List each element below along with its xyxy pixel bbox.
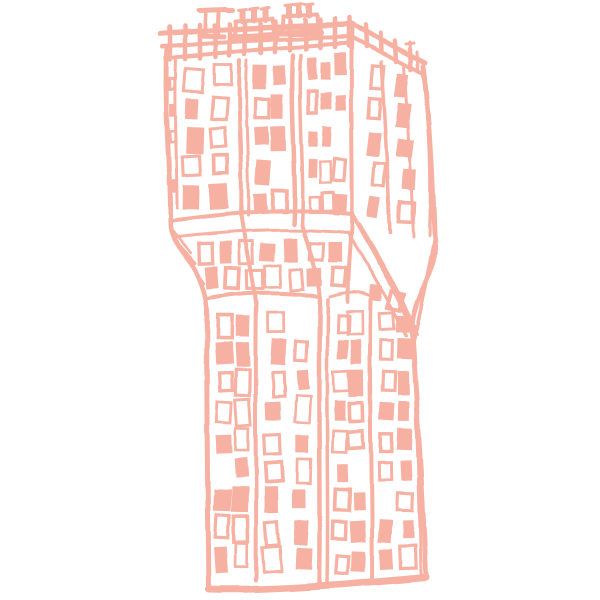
window: [235, 316, 249, 338]
window: [217, 316, 232, 339]
window: [308, 91, 316, 113]
window: [255, 159, 271, 185]
ledge-left: [206, 293, 318, 299]
window: [308, 131, 318, 147]
window: [335, 400, 346, 420]
window: [265, 462, 283, 482]
window: [400, 546, 416, 569]
window: [381, 434, 392, 451]
window: [234, 458, 248, 479]
window: [332, 430, 347, 452]
window: [271, 94, 283, 119]
window: [295, 396, 311, 422]
side-face-line-1: [381, 62, 390, 233]
left-edge-lower: [207, 310, 209, 589]
window: [205, 266, 219, 289]
window: [235, 342, 250, 367]
window: [293, 520, 308, 545]
window: [216, 435, 233, 454]
window: [353, 492, 365, 510]
window: [335, 489, 350, 511]
window: [219, 373, 232, 391]
window: [215, 342, 234, 365]
chimney-b-caps: [239, 8, 269, 10]
window: [350, 403, 363, 421]
window: [235, 369, 249, 395]
right-fold-curve: [414, 240, 434, 340]
window: [265, 522, 279, 546]
left-diagonal-1: [175, 240, 195, 263]
window: [211, 98, 227, 120]
window: [254, 127, 269, 146]
window: [296, 370, 309, 390]
window: [337, 465, 348, 483]
window: [210, 127, 226, 147]
window: [398, 371, 410, 395]
window: [368, 98, 380, 118]
chimney-a-base: [200, 36, 224, 37]
window: [214, 546, 228, 573]
window: [380, 312, 395, 329]
window: [272, 65, 286, 85]
window: [333, 372, 350, 392]
divider-2b: [300, 55, 303, 225]
lower-divider-1: [255, 302, 256, 580]
window: [400, 460, 412, 481]
window: [332, 268, 346, 287]
window: [307, 57, 318, 79]
crease-upper-1: [172, 211, 351, 221]
window: [350, 520, 367, 542]
window: [322, 126, 332, 146]
window: [270, 339, 287, 366]
window: [373, 163, 386, 187]
window: [264, 487, 278, 513]
divider-1b: [246, 60, 248, 216]
window: [186, 127, 204, 155]
window: [337, 340, 349, 360]
window: [233, 516, 248, 542]
window: [333, 159, 346, 181]
lower-divider-2a: [319, 300, 320, 583]
window: [183, 185, 200, 210]
window: [273, 190, 287, 212]
window: [219, 241, 232, 263]
window: [213, 490, 231, 512]
window: [378, 519, 392, 542]
building-illustration: [0, 0, 600, 600]
lower-divider-2b: [327, 300, 328, 583]
corner-line: [351, 30, 352, 228]
window: [336, 555, 349, 573]
window: [182, 156, 200, 176]
window: [332, 522, 346, 539]
window: [236, 543, 248, 566]
window: [216, 402, 231, 423]
divider-1a: [239, 60, 241, 216]
window: [398, 401, 409, 421]
window: [270, 127, 286, 151]
divider-2a: [292, 55, 295, 224]
window: [262, 546, 281, 571]
right-diagonal-3: [349, 235, 406, 336]
left-edge-upper: [166, 47, 170, 206]
window: [209, 183, 229, 210]
window: [322, 192, 334, 211]
window: [215, 65, 232, 86]
window: [367, 197, 381, 219]
window: [397, 428, 413, 450]
window: [308, 159, 317, 177]
window: [336, 95, 347, 110]
window: [403, 520, 415, 539]
window: [396, 139, 414, 159]
window: [265, 402, 281, 420]
window: [334, 53, 346, 75]
window: [379, 549, 393, 570]
window: [231, 487, 249, 512]
window: [236, 428, 249, 450]
window: [283, 238, 298, 262]
window: [297, 459, 311, 484]
window: [215, 515, 229, 538]
window: [381, 340, 392, 360]
canvas: [0, 0, 600, 600]
lower-divider-3: [370, 300, 372, 581]
window: [185, 99, 198, 119]
window: [383, 372, 396, 391]
window: [397, 493, 413, 510]
window: [320, 161, 331, 182]
window: [379, 462, 391, 480]
window: [328, 242, 342, 262]
window: [184, 68, 204, 92]
window: [264, 434, 281, 455]
left-trim-line: [175, 58, 177, 208]
window: [320, 93, 332, 110]
chimney-c-caps: [285, 4, 313, 6]
window: [351, 340, 363, 365]
window: [255, 99, 269, 118]
window: [235, 399, 251, 426]
window: [379, 402, 395, 420]
window: [265, 265, 281, 287]
window: [295, 341, 307, 361]
window: [366, 131, 382, 156]
window: [292, 490, 306, 508]
window: [199, 243, 213, 263]
window: [253, 65, 267, 90]
window: [213, 155, 227, 173]
window: [295, 548, 312, 569]
window: [321, 62, 331, 79]
window: [225, 268, 239, 289]
window: [267, 312, 283, 332]
window: [348, 431, 364, 449]
window: [296, 434, 308, 452]
window: [272, 373, 284, 397]
window: [349, 371, 365, 397]
window: [290, 269, 304, 290]
ledge-right: [330, 293, 372, 298]
chimney-a-cap: [199, 9, 233, 10]
crease-upper-2: [177, 230, 348, 237]
window: [259, 243, 275, 262]
page: { "page": { "background_color": "#ffffff…: [0, 0, 600, 600]
window: [351, 551, 366, 571]
